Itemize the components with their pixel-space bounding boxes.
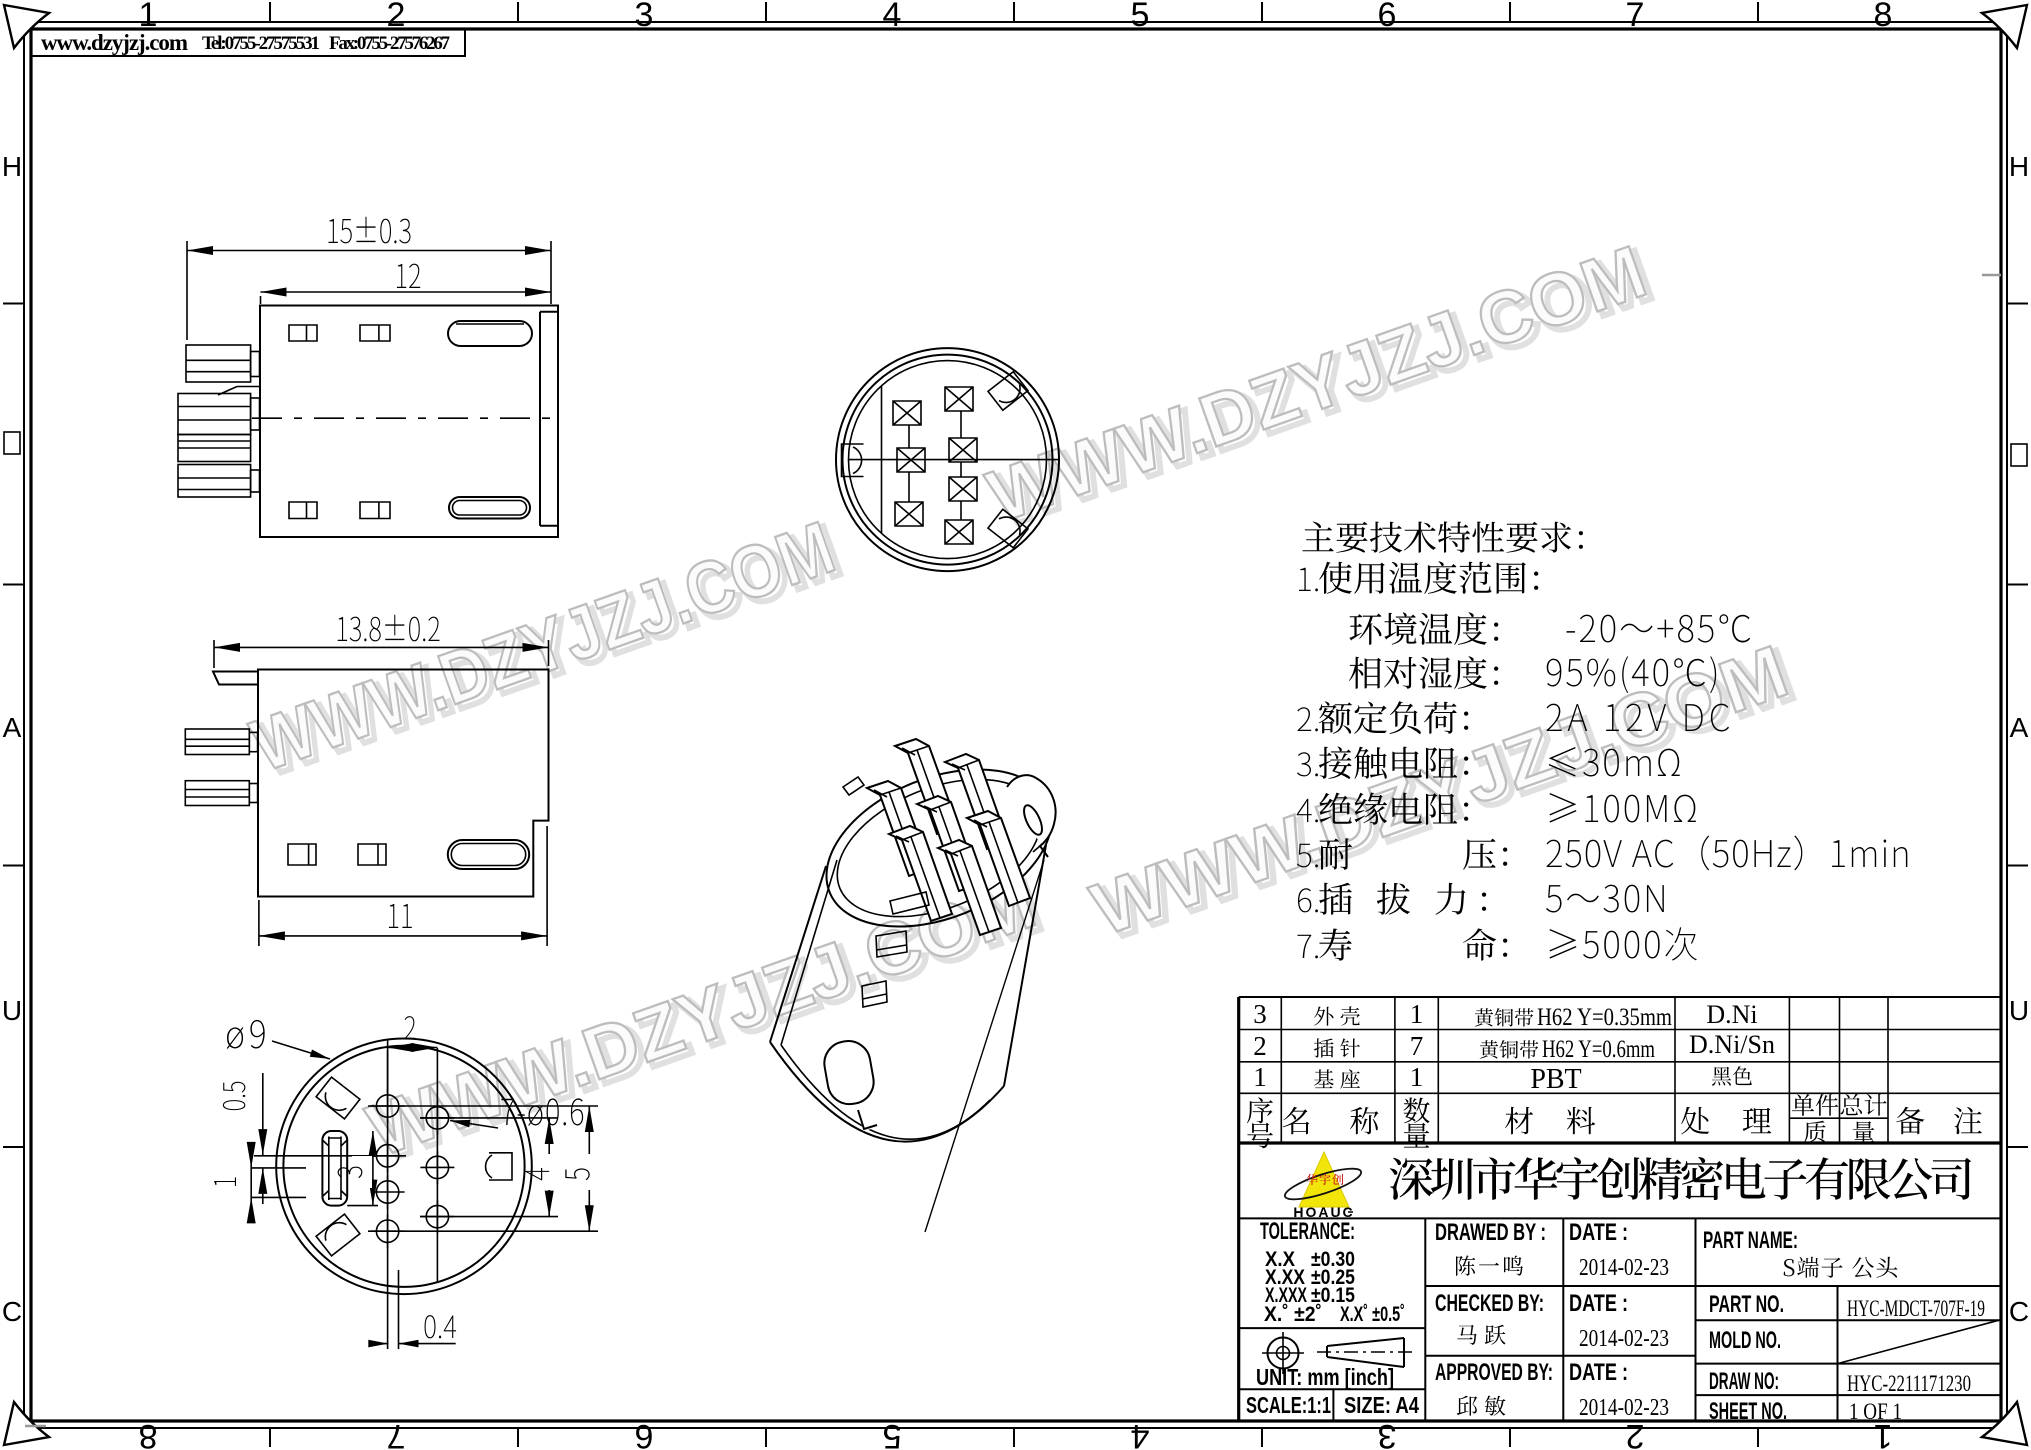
- svg-text:1: 1: [1410, 999, 1424, 1029]
- svg-text:2014-02-23: 2014-02-23: [1579, 1395, 1669, 1421]
- svg-text:2014-02-23: 2014-02-23: [1579, 1326, 1669, 1352]
- svg-text:X.X˚ ±0.5˚: X.X˚ ±0.5˚: [1340, 1303, 1405, 1326]
- svg-text:UNIT: mm [inch]: UNIT: mm [inch]: [1256, 1364, 1394, 1390]
- svg-text:5: 5: [1131, 0, 1150, 34]
- svg-text:7: 7: [387, 1417, 406, 1450]
- svg-text:U: U: [2, 995, 22, 1026]
- svg-text:HYC-2211171230: HYC-2211171230: [1847, 1371, 1971, 1396]
- svg-text:5: 5: [883, 1417, 902, 1450]
- svg-text:8: 8: [139, 1417, 158, 1450]
- svg-text:6: 6: [635, 1417, 654, 1450]
- svg-text:H62 Y=0.6mm: H62 Y=0.6mm: [1542, 1036, 1655, 1063]
- svg-text:SIZE: A4: SIZE: A4: [1344, 1392, 1419, 1418]
- svg-text:A: A: [3, 712, 22, 743]
- svg-text:8: 8: [1874, 0, 1893, 34]
- svg-text:3: 3: [1253, 999, 1267, 1029]
- svg-text:1: 1: [1253, 1062, 1267, 1092]
- svg-text:4: 4: [1131, 1417, 1150, 1450]
- svg-text:H62 Y=0.35mm: H62 Y=0.35mm: [1537, 1004, 1672, 1031]
- svg-text:DRAWED BY :: DRAWED BY :: [1435, 1219, 1546, 1246]
- svg-text:7: 7: [1626, 0, 1645, 34]
- svg-text:DATE :: DATE :: [1569, 1290, 1628, 1317]
- svg-text:H: H: [2009, 151, 2029, 182]
- svg-text:2014-02-23: 2014-02-23: [1579, 1255, 1669, 1281]
- svg-text:C: C: [2009, 1296, 2029, 1327]
- svg-text:D.Ni: D.Ni: [1706, 1000, 1757, 1029]
- svg-text:3: 3: [1378, 1417, 1397, 1450]
- svg-text:MOLD NO.: MOLD NO.: [1709, 1327, 1781, 1354]
- svg-text:PBT: PBT: [1530, 1064, 1581, 1095]
- svg-text:DATE :: DATE :: [1569, 1219, 1628, 1246]
- svg-text:APPROVED BY:: APPROVED BY:: [1435, 1359, 1553, 1386]
- svg-text:A: A: [2010, 712, 2029, 743]
- svg-text:SHEET NO.: SHEET NO.: [1709, 1398, 1787, 1425]
- svg-text:6: 6: [1378, 0, 1397, 34]
- svg-text:Fax:0755-27576267: Fax:0755-27576267: [329, 33, 451, 54]
- svg-text:D.Ni/Sn: D.Ni/Sn: [1689, 1030, 1775, 1059]
- svg-text:2: 2: [1253, 1031, 1267, 1061]
- svg-text:C: C: [2, 1296, 22, 1327]
- svg-text:4: 4: [883, 0, 902, 34]
- svg-text:2: 2: [1626, 1417, 1645, 1450]
- svg-text:HYC-MDCT-707F-19: HYC-MDCT-707F-19: [1847, 1296, 1985, 1321]
- svg-text:DATE :: DATE :: [1569, 1359, 1628, 1386]
- svg-text:CHECKED BY:: CHECKED BY:: [1435, 1290, 1544, 1317]
- svg-text:www.dzyjzj.com: www.dzyjzj.com: [41, 30, 188, 55]
- svg-text:Tel:0755-27575531: Tel:0755-27575531: [202, 33, 320, 54]
- svg-text:DRAW NO:: DRAW NO:: [1709, 1368, 1779, 1395]
- svg-text:TOLERANCE:: TOLERANCE:: [1260, 1218, 1355, 1245]
- svg-text:U: U: [2009, 995, 2029, 1026]
- svg-text:PART NAME:: PART NAME:: [1703, 1227, 1798, 1254]
- svg-text:1 OF 1: 1 OF 1: [1849, 1399, 1902, 1424]
- svg-text:1: 1: [1410, 1062, 1424, 1092]
- svg-text:7: 7: [1410, 1031, 1424, 1061]
- svg-text:H: H: [2, 151, 22, 182]
- svg-text:SCALE:1:1: SCALE:1:1: [1246, 1392, 1331, 1418]
- svg-text:PART NO.: PART NO.: [1709, 1291, 1784, 1318]
- svg-text:3: 3: [635, 0, 654, 34]
- svg-text:X.˚ ±2˚: X.˚ ±2˚: [1264, 1303, 1322, 1326]
